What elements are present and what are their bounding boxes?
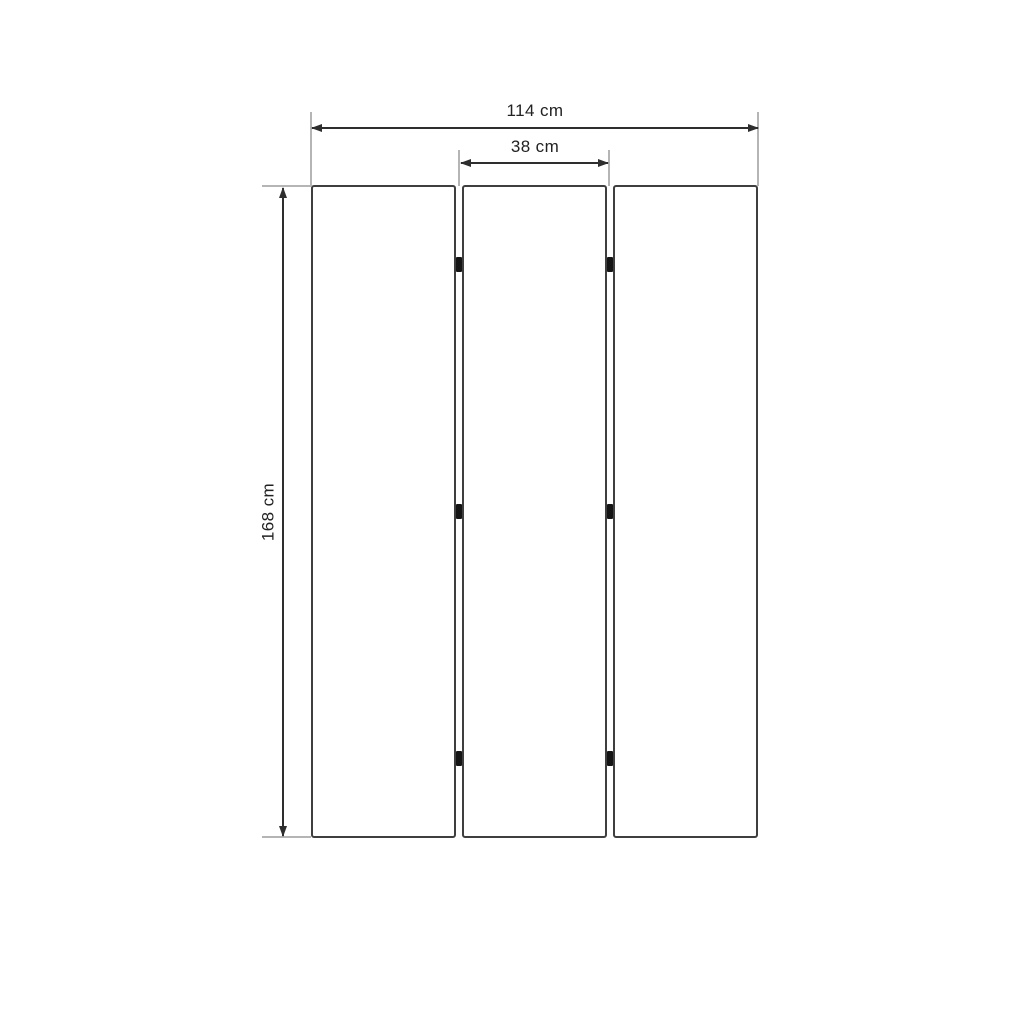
panel-left xyxy=(311,185,456,838)
dimension-line-height xyxy=(282,188,284,836)
panel-width-label: 38 cm xyxy=(460,138,610,155)
arrow-down-icon xyxy=(279,826,287,837)
hinge-left-gap-top xyxy=(456,257,462,272)
dimension-line-panel-width xyxy=(461,162,608,164)
panel-right xyxy=(613,185,758,838)
arrow-up-icon xyxy=(279,187,287,198)
hinge-right-gap-top xyxy=(607,257,613,272)
panel-middle xyxy=(462,185,607,838)
extension-line-panel-width-left xyxy=(458,150,460,186)
dimension-line-total-width xyxy=(312,127,758,129)
hinge-left-gap-bottom xyxy=(456,751,462,766)
hinge-right-gap-middle xyxy=(607,504,613,519)
arrow-left-icon xyxy=(311,124,322,132)
dimension-diagram: 114 cm 38 cm 168 cm xyxy=(0,0,1024,1024)
arrow-left-icon xyxy=(460,159,471,167)
total-width-label: 114 cm xyxy=(460,102,610,119)
extension-line-panel-width-right xyxy=(608,150,610,186)
arrow-right-icon xyxy=(598,159,609,167)
height-label: 168 cm xyxy=(260,483,277,541)
hinge-left-gap-middle xyxy=(456,504,462,519)
arrow-right-icon xyxy=(748,124,759,132)
hinge-right-gap-bottom xyxy=(607,751,613,766)
